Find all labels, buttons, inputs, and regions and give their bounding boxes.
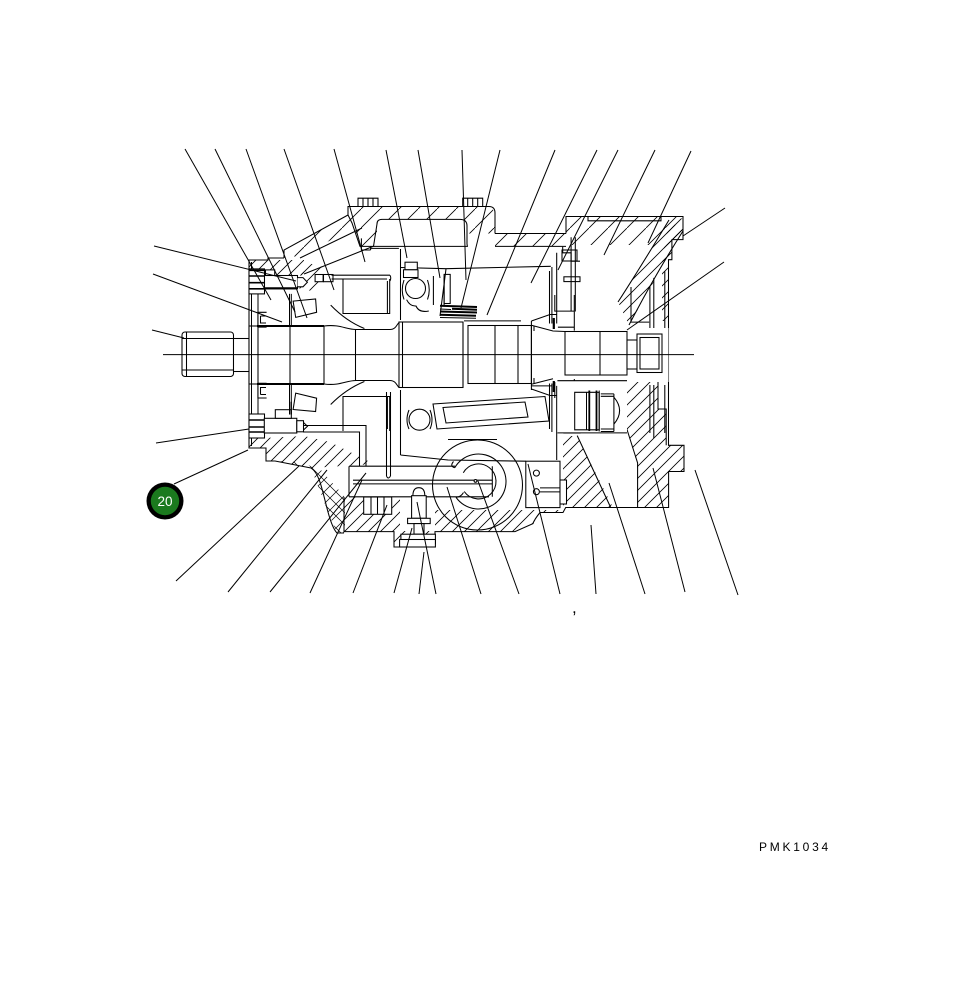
svg-text:,: , <box>572 598 577 617</box>
svg-text:PMK1034: PMK1034 <box>759 840 831 854</box>
svg-text:20: 20 <box>157 494 172 509</box>
